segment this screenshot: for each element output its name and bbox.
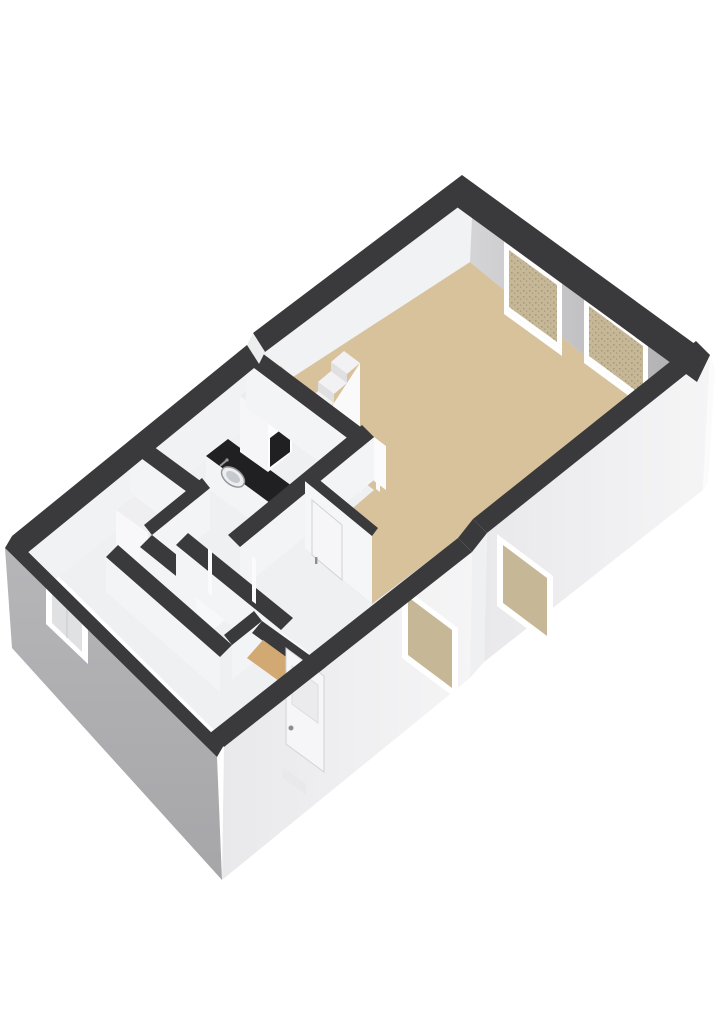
door-jamb [376, 444, 380, 492]
front-door-handle [289, 726, 294, 731]
interior-door-handle [315, 557, 317, 564]
door-jamb [252, 556, 256, 604]
door-jamb [208, 548, 212, 596]
floorplan-canvas[interactable]: Isometric 3D floor plan render of a sing… [0, 0, 724, 1024]
kitchen-faucet-head [225, 458, 228, 461]
floorplan-page: Isometric 3D floor plan render of a sing… [0, 0, 724, 1024]
